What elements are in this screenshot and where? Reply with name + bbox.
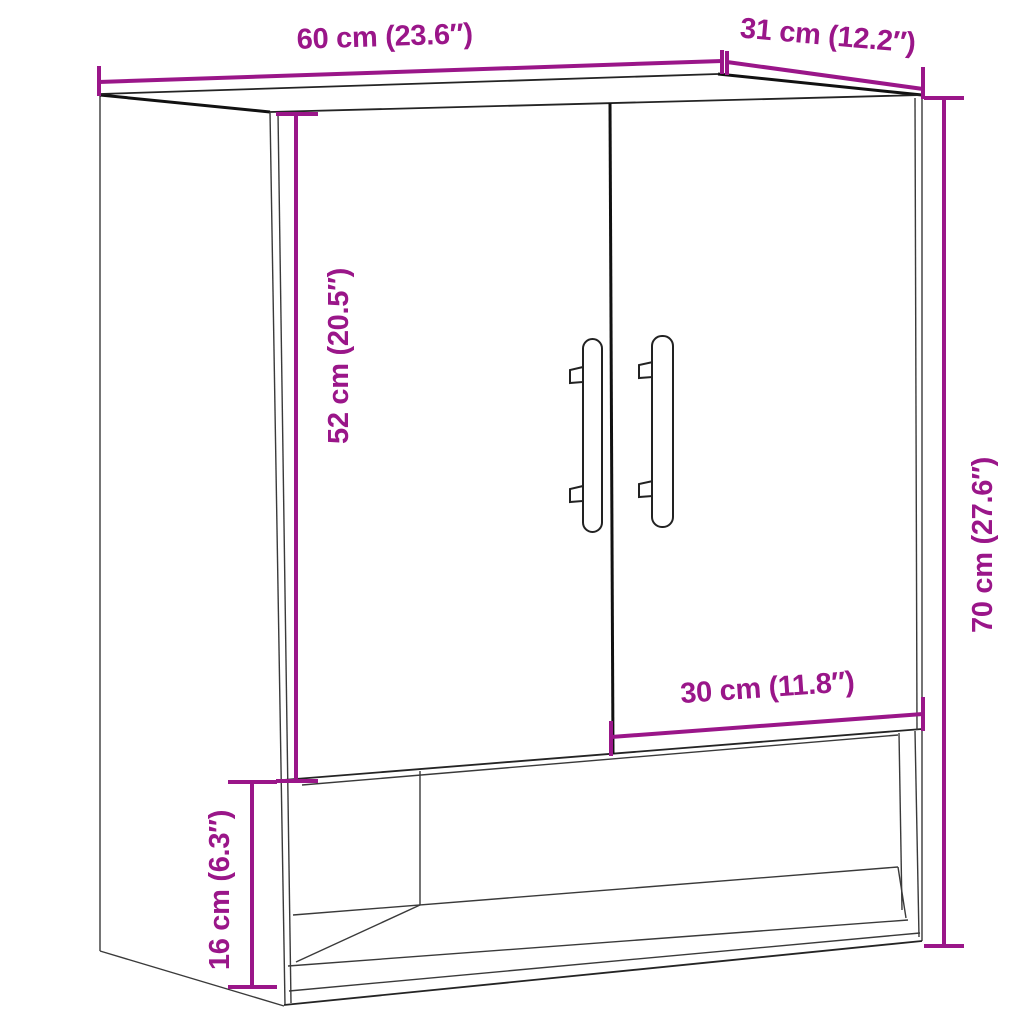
dimension-shelf-height: 16 cm (6.3″): [204, 782, 277, 987]
right-handle-lower-stem: [639, 481, 653, 497]
left-door-handle: [570, 339, 602, 532]
left-panel-bottom-edge: [100, 951, 284, 1006]
right-door-handle: [639, 336, 673, 527]
cabinet-diagram-svg: 60 cm (23.6″) 31 cm (12.2″) 52 cm (20.5″…: [0, 0, 1024, 1024]
left-handle-lower-stem: [570, 486, 583, 502]
front-left-corner-edge: [270, 112, 285, 1005]
door-gap-line: [610, 103, 613, 754]
open-shelf-compartment: [288, 731, 919, 966]
dimension-door-width: 30 cm (11.8″): [611, 666, 923, 756]
dimension-annotations: 60 cm (23.6″) 31 cm (12.2″) 52 cm (20.5″…: [99, 12, 999, 987]
right-handle-upper-stem: [639, 362, 653, 378]
right-frame-edge: [915, 731, 919, 937]
width-dimension-line: [99, 61, 722, 82]
depth-dimension-label: 31 cm (12.2″): [739, 12, 917, 59]
width-dimension-label: 60 cm (23.6″): [296, 18, 473, 56]
door-bottom-edge: [283, 729, 922, 780]
bottom-panel-edge: [289, 933, 920, 991]
door-height-dimension-label: 52 cm (20.5″): [323, 268, 355, 444]
top-front-edge: [270, 95, 922, 112]
left-panel-top-edge: [100, 95, 270, 112]
front-left-stile-edge: [278, 113, 291, 1003]
back-panel-bottom-edge: [293, 867, 898, 915]
dimension-door-height: 52 cm (20.5″): [276, 114, 355, 781]
dimension-height: 70 cm (27.6″): [924, 98, 999, 946]
right-handle-bar: [652, 336, 673, 527]
door-width-dimension-label: 30 cm (11.8″): [679, 666, 855, 710]
product-dimension-diagram: 60 cm (23.6″) 31 cm (12.2″) 52 cm (20.5″…: [0, 0, 1024, 1024]
opening-top-inner-edge: [302, 735, 898, 785]
shelf-height-dimension-label: 16 cm (6.3″): [204, 810, 236, 970]
height-dimension-label: 70 cm (27.6″): [967, 457, 999, 633]
right-door-edge: [915, 98, 917, 730]
left-handle-upper-stem: [570, 367, 583, 383]
left-handle-bar: [583, 339, 602, 532]
bottom-front-edge: [284, 941, 922, 1005]
door-handles: [570, 336, 673, 532]
